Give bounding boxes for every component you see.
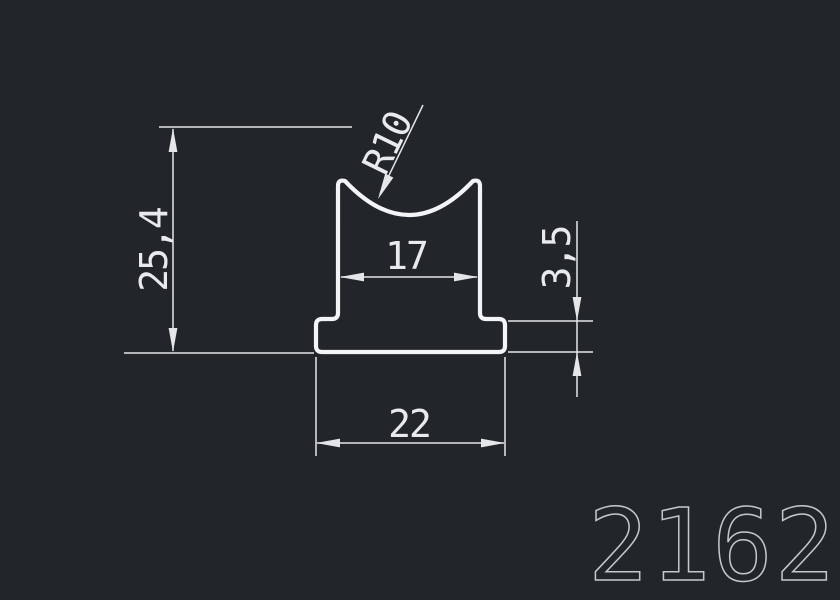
cad-canvas: 25,4 R10 17 3,5 22 2162 [0,0,840,600]
dimension-label-top-width: 17 [385,234,427,278]
dimension-label-base-thickness: 3,5 [535,227,579,290]
dimension-label-height: 25,4 [132,207,176,292]
dimension-label-base-width: 22 [388,402,430,446]
part-number-text: 2162 [588,487,837,600]
cad-drawing-stage: 25,4 R10 17 3,5 22 2162 [0,0,840,600]
